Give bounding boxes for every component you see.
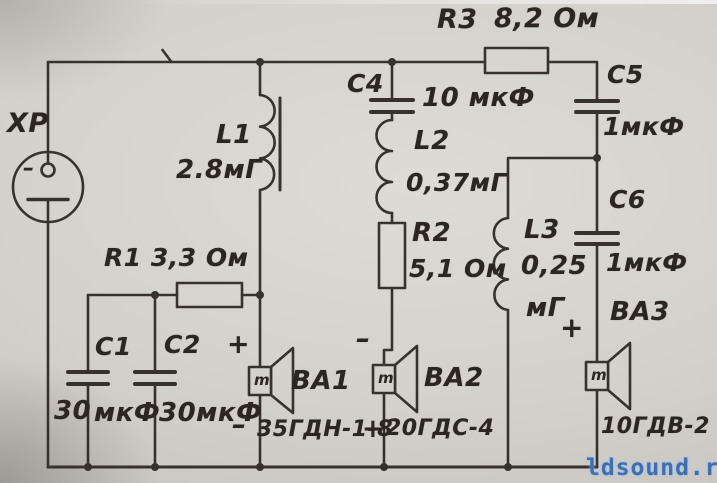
resistor-r3-body [485,48,548,73]
capacitor-c5-plates [576,101,618,112]
xp-pin-minus: – [23,158,35,180]
ba1-plus-sign: + [227,331,250,358]
speaker-ba1-cone [271,348,293,413]
junction-dot [593,154,601,162]
xp-ref-label: ХР [7,110,49,137]
watermark: ldsound.ru [586,455,717,481]
resistor-r1-body [177,283,242,307]
junction-dot [504,463,512,471]
l2-value-label: 0,37мГ [406,170,507,195]
r1-label: R1 3,3 Ом [104,245,249,270]
junction-dot [256,291,264,299]
ba1-minus-sign: – [232,411,247,439]
resistor-r2-body [379,223,405,288]
capacitor-c1-plates [68,372,108,384]
ba1-ref-label: ВА1 [291,368,351,394]
l2-ref-label: L2 [414,128,450,154]
c1-ref-label: С1 [95,334,132,359]
l3-value-label: 0,25 [521,253,587,279]
schematic-photo: ХР – L1 2.8мГ R1 3,3 Ом С1 С2 30 мкФ 30м… [0,0,717,483]
ba3-model-label: 10ГДВ-2 [601,416,710,438]
junction-dot [380,463,388,471]
junction-dot [256,463,264,471]
c2-ref-label: С2 [164,332,201,357]
junction-dot [388,58,396,66]
r3-value-label: 8,2 Ом [494,5,599,32]
ba2-minus-sign: – [356,325,371,353]
ba1-coil-glyph: m [254,373,270,388]
junction-dot [151,463,159,471]
ba3-coil-glyph: m [591,368,607,383]
c5-value-label: 1мкФ [603,114,685,139]
speaker-ba2-cone [395,346,417,412]
c1-value-unit: мкФ [94,400,160,426]
ba2-model-label: 20ГДС-4 [386,418,494,440]
ba2-ref-label: ВА2 [424,365,484,391]
r3-ref-label: R3 [437,6,478,33]
ba2-coil-glyph: m [378,371,394,386]
c5-ref-label: С5 [607,62,644,87]
l1-ref-label: L1 [216,122,252,148]
junction-dot [151,291,159,299]
capacitor-c4-plates [371,100,413,112]
c4-ref-label: С4 [347,71,384,96]
crease-tick [163,50,172,62]
l3-ref-label: L3 [524,217,560,243]
speaker-ba3-cone [608,343,630,409]
ba3-ref-label: ВА3 [610,299,670,325]
c6-ref-label: С6 [609,187,646,212]
ba3-plus-sign: + [560,314,584,342]
c1-value-number: 30 [54,398,91,424]
capacitor-c2-plates [135,372,175,384]
inductor-l2-coil [376,120,392,213]
r2-ref-label: R2 [412,220,451,246]
capacitor-c6-plates [576,233,618,244]
l1-value-label: 2.8мГ [176,157,262,183]
l3-unit-label: мГ [526,295,565,321]
c4-value-label: 10 мкФ [422,85,535,111]
xp-connector-pin [42,164,55,177]
ba2-plus-sign: + [362,416,384,442]
junction-dot [256,58,264,66]
c6-value-label: 1мкФ [606,250,688,275]
junction-dot [84,463,92,471]
r2-value-label: 5,1 Ом [409,256,507,281]
